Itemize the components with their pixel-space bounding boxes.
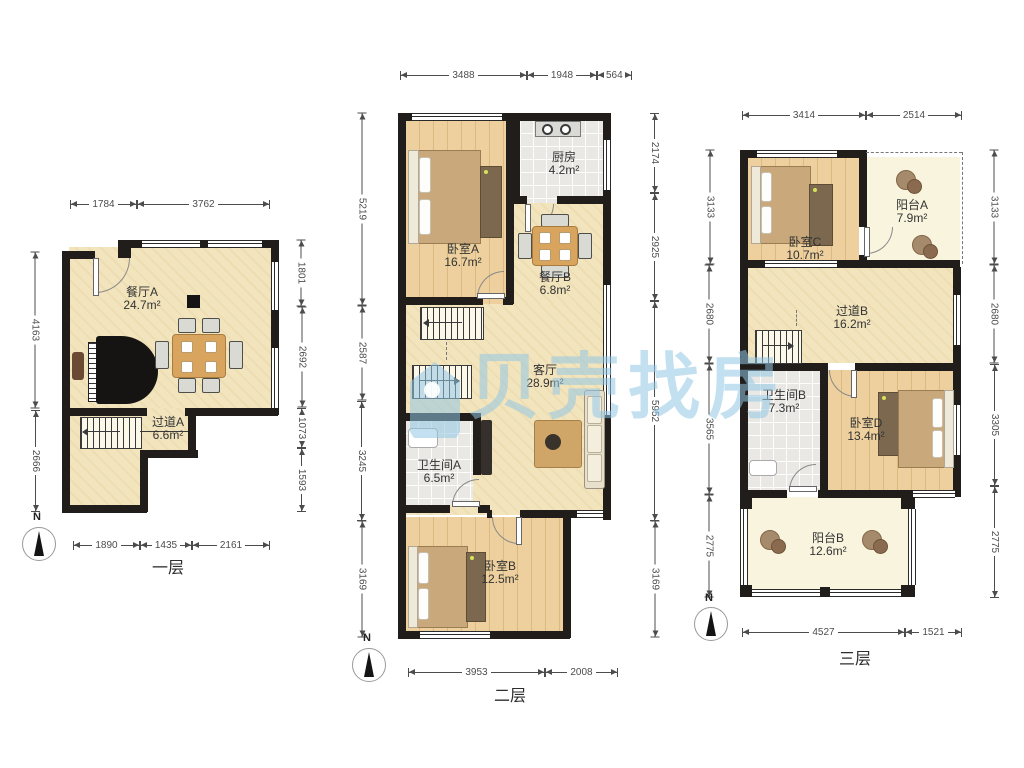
dim-v: 2174: [649, 113, 661, 193]
chair: [578, 233, 592, 259]
bed-headboard: [751, 166, 761, 244]
compass-icon: [694, 607, 728, 641]
chair: [229, 341, 243, 369]
stove-icon: [535, 121, 581, 137]
dim-v: 3305: [989, 364, 1001, 486]
floorplan-canvas: 餐厅A 24.7m² 过道A 6.6m² 一层 1784 3762 1890 1…: [0, 0, 1024, 768]
pillow: [761, 172, 772, 202]
staircase-up: [420, 307, 484, 340]
door-leaf: [851, 370, 857, 398]
pillow: [932, 398, 943, 428]
wall: [398, 113, 406, 638]
watermark-text: 贝壳找房: [468, 352, 788, 424]
window: [208, 240, 262, 248]
room-area: 4.2m²: [514, 164, 614, 177]
room-label-dining-b: 餐厅B 6.8m²: [505, 271, 605, 297]
wall: [62, 408, 147, 416]
balcony-dashed-edge: [866, 152, 962, 153]
balcony-dashed-edge: [962, 152, 963, 264]
window: [953, 295, 961, 345]
chair: [202, 378, 220, 393]
room-area: 12.5m²: [450, 573, 550, 586]
north-label: N: [363, 632, 371, 644]
dim-v: 1801: [296, 240, 308, 307]
chair: [518, 233, 532, 259]
dim-v: 2680: [989, 265, 1001, 364]
room-label-bedroom-d: 卧室D 13.4m²: [816, 417, 916, 443]
window: [757, 150, 837, 158]
wall: [185, 408, 278, 416]
dim-v: 2925: [649, 193, 661, 301]
dim-v: 2692: [297, 307, 309, 408]
wall: [140, 450, 198, 458]
door-leaf: [477, 293, 505, 299]
dim-h: 1784: [70, 198, 137, 210]
dim-h: 4527: [742, 626, 905, 638]
door-leaf: [516, 517, 522, 545]
room-hall-a-lower-floor: [69, 454, 140, 505]
wall: [740, 150, 748, 512]
piano-bench: [72, 352, 84, 380]
balcony-mid-post: [820, 587, 830, 597]
bath-counter: [749, 460, 777, 476]
room-area: 10.7m²: [755, 249, 855, 262]
room-label-dining-a: 餐厅A 24.7m²: [92, 286, 192, 312]
dim-v: 2666: [30, 410, 42, 512]
dim-v: 3245: [356, 401, 368, 521]
wall: [859, 260, 960, 268]
bed-headboard: [408, 546, 418, 628]
place-setting: [559, 232, 571, 244]
dim-v: 1073: [296, 408, 308, 448]
window: [913, 490, 955, 498]
dim-h: 3414: [742, 109, 866, 121]
dim-h: 2008: [545, 666, 618, 678]
wardrobe: [480, 166, 502, 238]
dim-h: 1948: [527, 69, 597, 81]
room-area: 6.8m²: [505, 284, 605, 297]
balcony-corner-post: [740, 585, 752, 597]
wall: [62, 505, 147, 513]
dim-h: 1890: [73, 539, 140, 551]
sofa-cushion: [587, 425, 602, 453]
window: [271, 348, 279, 408]
place-setting: [181, 361, 193, 373]
room-area: 16.2m²: [802, 318, 902, 331]
place-setting: [205, 361, 217, 373]
dim-h: 2161: [192, 539, 270, 551]
room-label-bedroom-b: 卧室B 12.5m²: [450, 560, 550, 586]
plant-icon: [912, 235, 938, 259]
north-label: N: [705, 592, 713, 604]
window: [420, 631, 490, 639]
dining-table: [172, 334, 226, 378]
place-setting: [539, 232, 551, 244]
floor-label-3: 三层: [805, 645, 905, 669]
window: [577, 510, 603, 518]
door-leaf: [864, 227, 870, 257]
wall: [513, 196, 527, 204]
window: [908, 509, 916, 585]
place-setting: [205, 341, 217, 353]
stair-arrow-line: [428, 322, 462, 323]
stair-arrow: [423, 319, 429, 327]
room-label-kitchen: 厨房 4.2m²: [514, 151, 614, 177]
dim-v: 4163: [30, 252, 42, 409]
dim-h: 3762: [137, 198, 270, 210]
compass-icon: [352, 648, 386, 682]
dining-table: [532, 226, 578, 266]
window: [953, 405, 961, 455]
chair: [178, 318, 196, 333]
dim-v: 1593: [296, 448, 308, 512]
compass-icon: [22, 527, 56, 561]
sofa-cushion: [587, 454, 602, 482]
wall: [62, 251, 70, 512]
dim-h: 1435: [140, 539, 192, 551]
pillow: [419, 199, 431, 235]
stair-arrow: [788, 342, 794, 350]
wall: [818, 490, 913, 498]
room-label-balcony-b: 阳台B 12.6m²: [778, 532, 878, 558]
stair-direction-dash: [446, 342, 447, 360]
window: [142, 240, 200, 248]
pillow: [419, 157, 431, 193]
balcony-corner-post: [901, 497, 915, 509]
room-label-balcony-a: 阳台A 7.9m²: [862, 199, 962, 225]
stair-arrow-line: [762, 345, 790, 346]
room-label-bath-a: 卫生间A 6.5m²: [389, 459, 489, 485]
dim-h: 3488: [400, 69, 527, 81]
dim-h: 3953: [408, 666, 545, 678]
room-label-bedroom-c: 卧室C 10.7m²: [755, 236, 855, 262]
dim-v: 2775: [989, 486, 1001, 598]
room-label-hall-a: 过道A 6.6m²: [118, 416, 218, 442]
floor-label-1: 一层: [118, 554, 218, 578]
compass-needle: [34, 531, 44, 556]
dim-v: 3133: [989, 150, 1001, 265]
room-label-hall-b: 过道B 16.2m²: [802, 305, 902, 331]
wall: [118, 240, 131, 258]
dim-h: 564: [597, 69, 623, 81]
wall: [140, 450, 148, 512]
pillow: [932, 430, 943, 458]
wall: [405, 297, 483, 305]
stair-direction-dash: [796, 310, 797, 326]
beike-logo-hole: [424, 382, 440, 398]
place-setting: [181, 341, 193, 353]
dim-h: 1521: [905, 626, 962, 638]
dim-v: 3133: [705, 150, 717, 265]
wall: [557, 196, 610, 204]
balcony-corner-post: [740, 497, 752, 509]
plant-icon: [896, 170, 922, 194]
dim-v: 2775: [704, 495, 716, 598]
window: [740, 509, 748, 585]
room-area: 7.9m²: [862, 212, 962, 225]
pillow: [761, 206, 772, 234]
room-area: 6.5m²: [389, 472, 489, 485]
bed-headboard: [408, 150, 419, 244]
chair: [155, 341, 169, 369]
dim-v: 3169: [357, 521, 369, 638]
room-area: 6.6m²: [118, 429, 218, 442]
floor-label-2: 二层: [460, 682, 560, 706]
window: [412, 113, 502, 121]
door-leaf: [789, 486, 817, 492]
dim-v: 3169: [650, 521, 662, 638]
dim-v: 5219: [357, 113, 369, 306]
window: [271, 262, 279, 310]
wall: [563, 517, 571, 638]
dim-v: 2587: [357, 306, 369, 401]
room-area: 12.6m²: [778, 545, 878, 558]
wall: [855, 363, 953, 371]
bed-headboard: [944, 390, 954, 468]
dim-h: 2514: [866, 109, 962, 121]
pillow: [418, 588, 429, 620]
chair: [178, 378, 196, 393]
balcony-corner-post: [901, 585, 915, 597]
door-leaf: [525, 204, 531, 232]
place-setting: [559, 249, 571, 261]
room-area: 16.7m²: [413, 256, 513, 269]
north-label: N: [33, 511, 41, 523]
room-label-bedroom-a: 卧室A 16.7m²: [413, 243, 513, 269]
door-leaf: [452, 501, 480, 507]
wall: [398, 505, 450, 513]
stair-arrow-line: [88, 431, 120, 432]
room-area: 13.4m²: [816, 430, 916, 443]
place-setting: [539, 249, 551, 261]
stair-arrow: [82, 428, 88, 436]
pillow: [418, 552, 429, 584]
compass-needle: [706, 611, 716, 636]
compass-needle: [364, 652, 374, 677]
chair: [202, 318, 220, 333]
room-area: 24.7m²: [92, 299, 192, 312]
